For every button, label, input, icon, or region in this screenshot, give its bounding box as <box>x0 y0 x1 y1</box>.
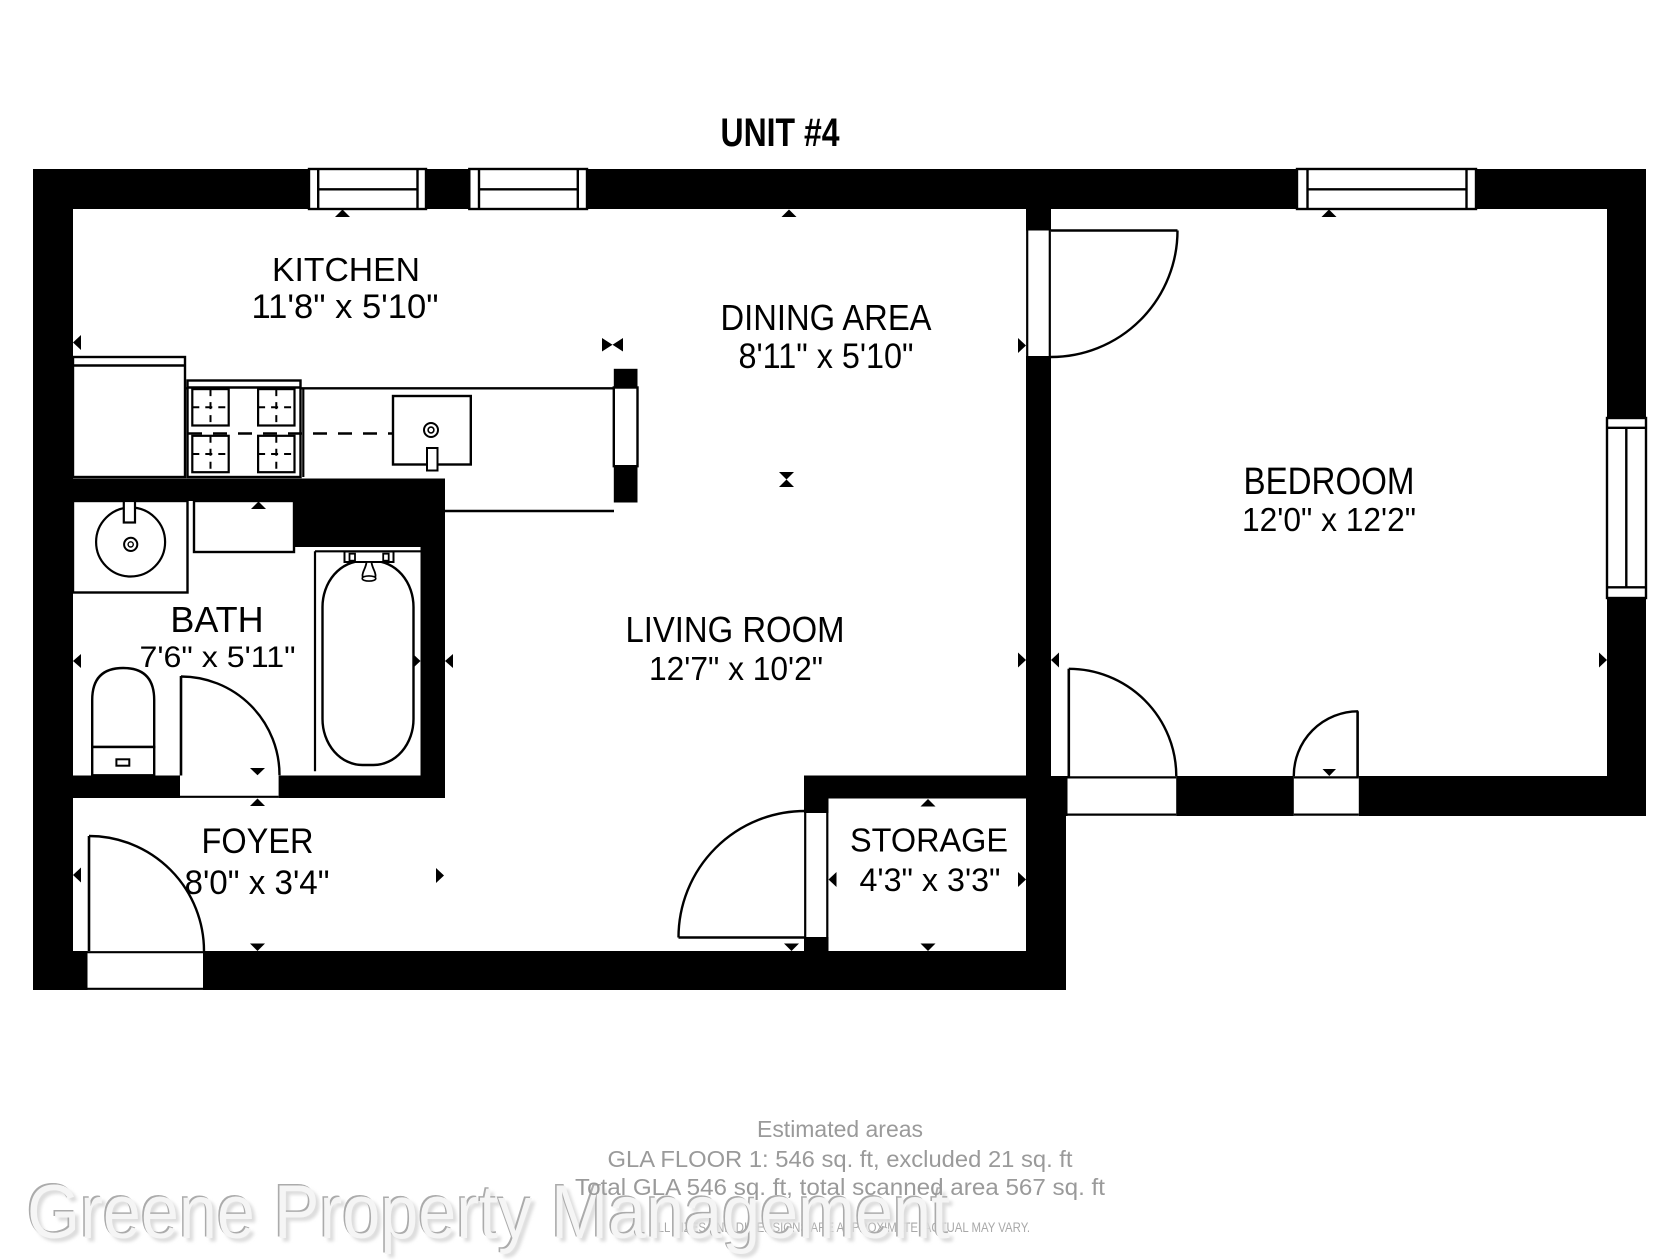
svg-text:DINING AREA: DINING AREA <box>721 297 932 338</box>
svg-text:12'0" x 12'2": 12'0" x 12'2" <box>1242 501 1416 538</box>
svg-text:LIVING ROOM: LIVING ROOM <box>626 609 845 650</box>
svg-text:BATH: BATH <box>170 599 263 640</box>
svg-text:Estimated areas: Estimated areas <box>757 1116 923 1142</box>
svg-text:FOYER: FOYER <box>202 822 314 861</box>
svg-text:11'8" x 5'10": 11'8" x 5'10" <box>252 288 439 326</box>
svg-text:STORAGE: STORAGE <box>850 822 1008 859</box>
svg-text:KITCHEN: KITCHEN <box>272 251 420 288</box>
svg-text:BEDROOM: BEDROOM <box>1244 461 1415 503</box>
svg-text:UNIT #4: UNIT #4 <box>721 111 841 155</box>
svg-text:GLA FLOOR 1: 546 sq. ft, exclu: GLA FLOOR 1: 546 sq. ft, excluded 21 sq.… <box>608 1146 1074 1172</box>
svg-text:12'7" x 10'2": 12'7" x 10'2" <box>649 650 823 687</box>
svg-text:8'0" x 3'4": 8'0" x 3'4" <box>185 864 330 902</box>
svg-text:4'3" x 3'3": 4'3" x 3'3" <box>860 862 1001 898</box>
svg-text:7'6" x 5'11": 7'6" x 5'11" <box>140 641 296 674</box>
svg-text:8'11" x 5'10": 8'11" x 5'10" <box>739 337 914 376</box>
svg-text:Total GLA 546 sq. ft, total sc: Total GLA 546 sq. ft, total scanned area… <box>575 1174 1106 1200</box>
